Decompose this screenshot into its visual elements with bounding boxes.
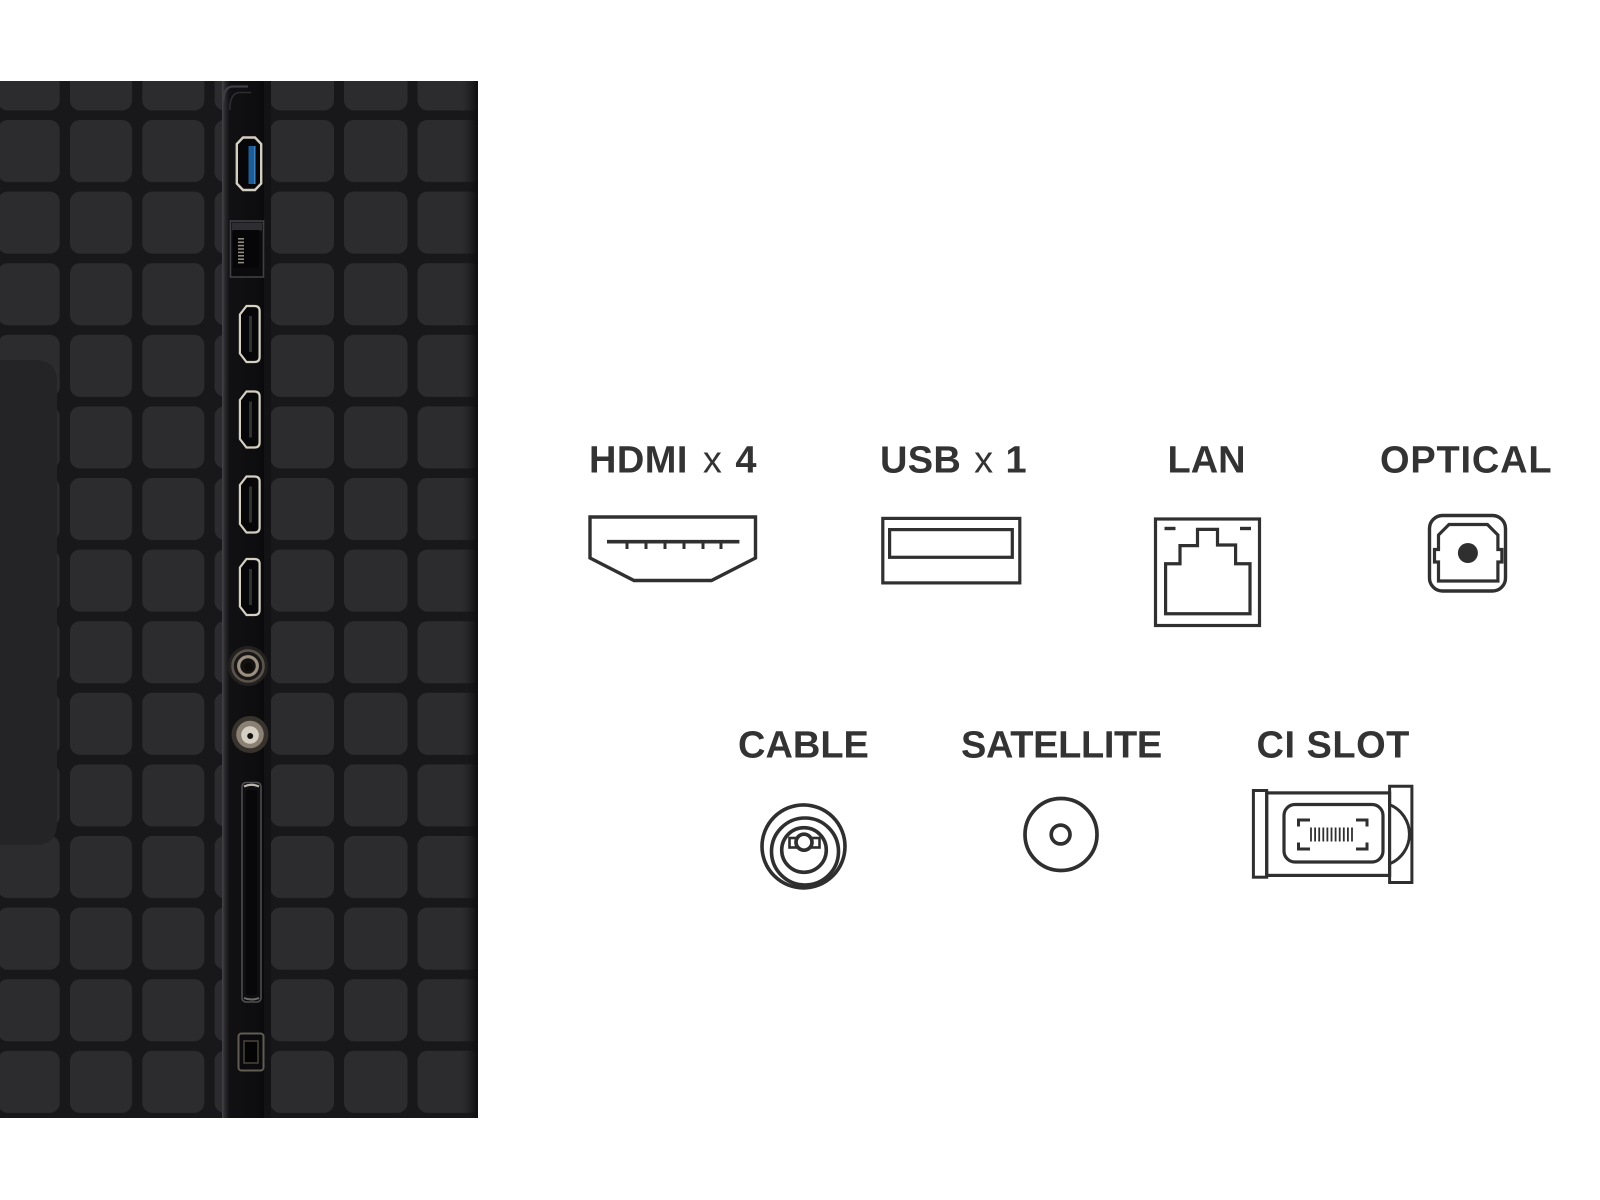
svg-text:SATELLITE: SATELLITE: [961, 725, 1162, 767]
svg-text:CI SLOT: CI SLOT: [1257, 725, 1410, 767]
svg-text:OPTICAL: OPTICAL: [1380, 440, 1552, 482]
svg-text:HDMIx4: HDMIx4: [589, 440, 757, 482]
svg-text:LAN: LAN: [1168, 440, 1246, 482]
svg-text:CABLE: CABLE: [738, 725, 869, 767]
svg-text:USBx1: USBx1: [880, 440, 1027, 482]
